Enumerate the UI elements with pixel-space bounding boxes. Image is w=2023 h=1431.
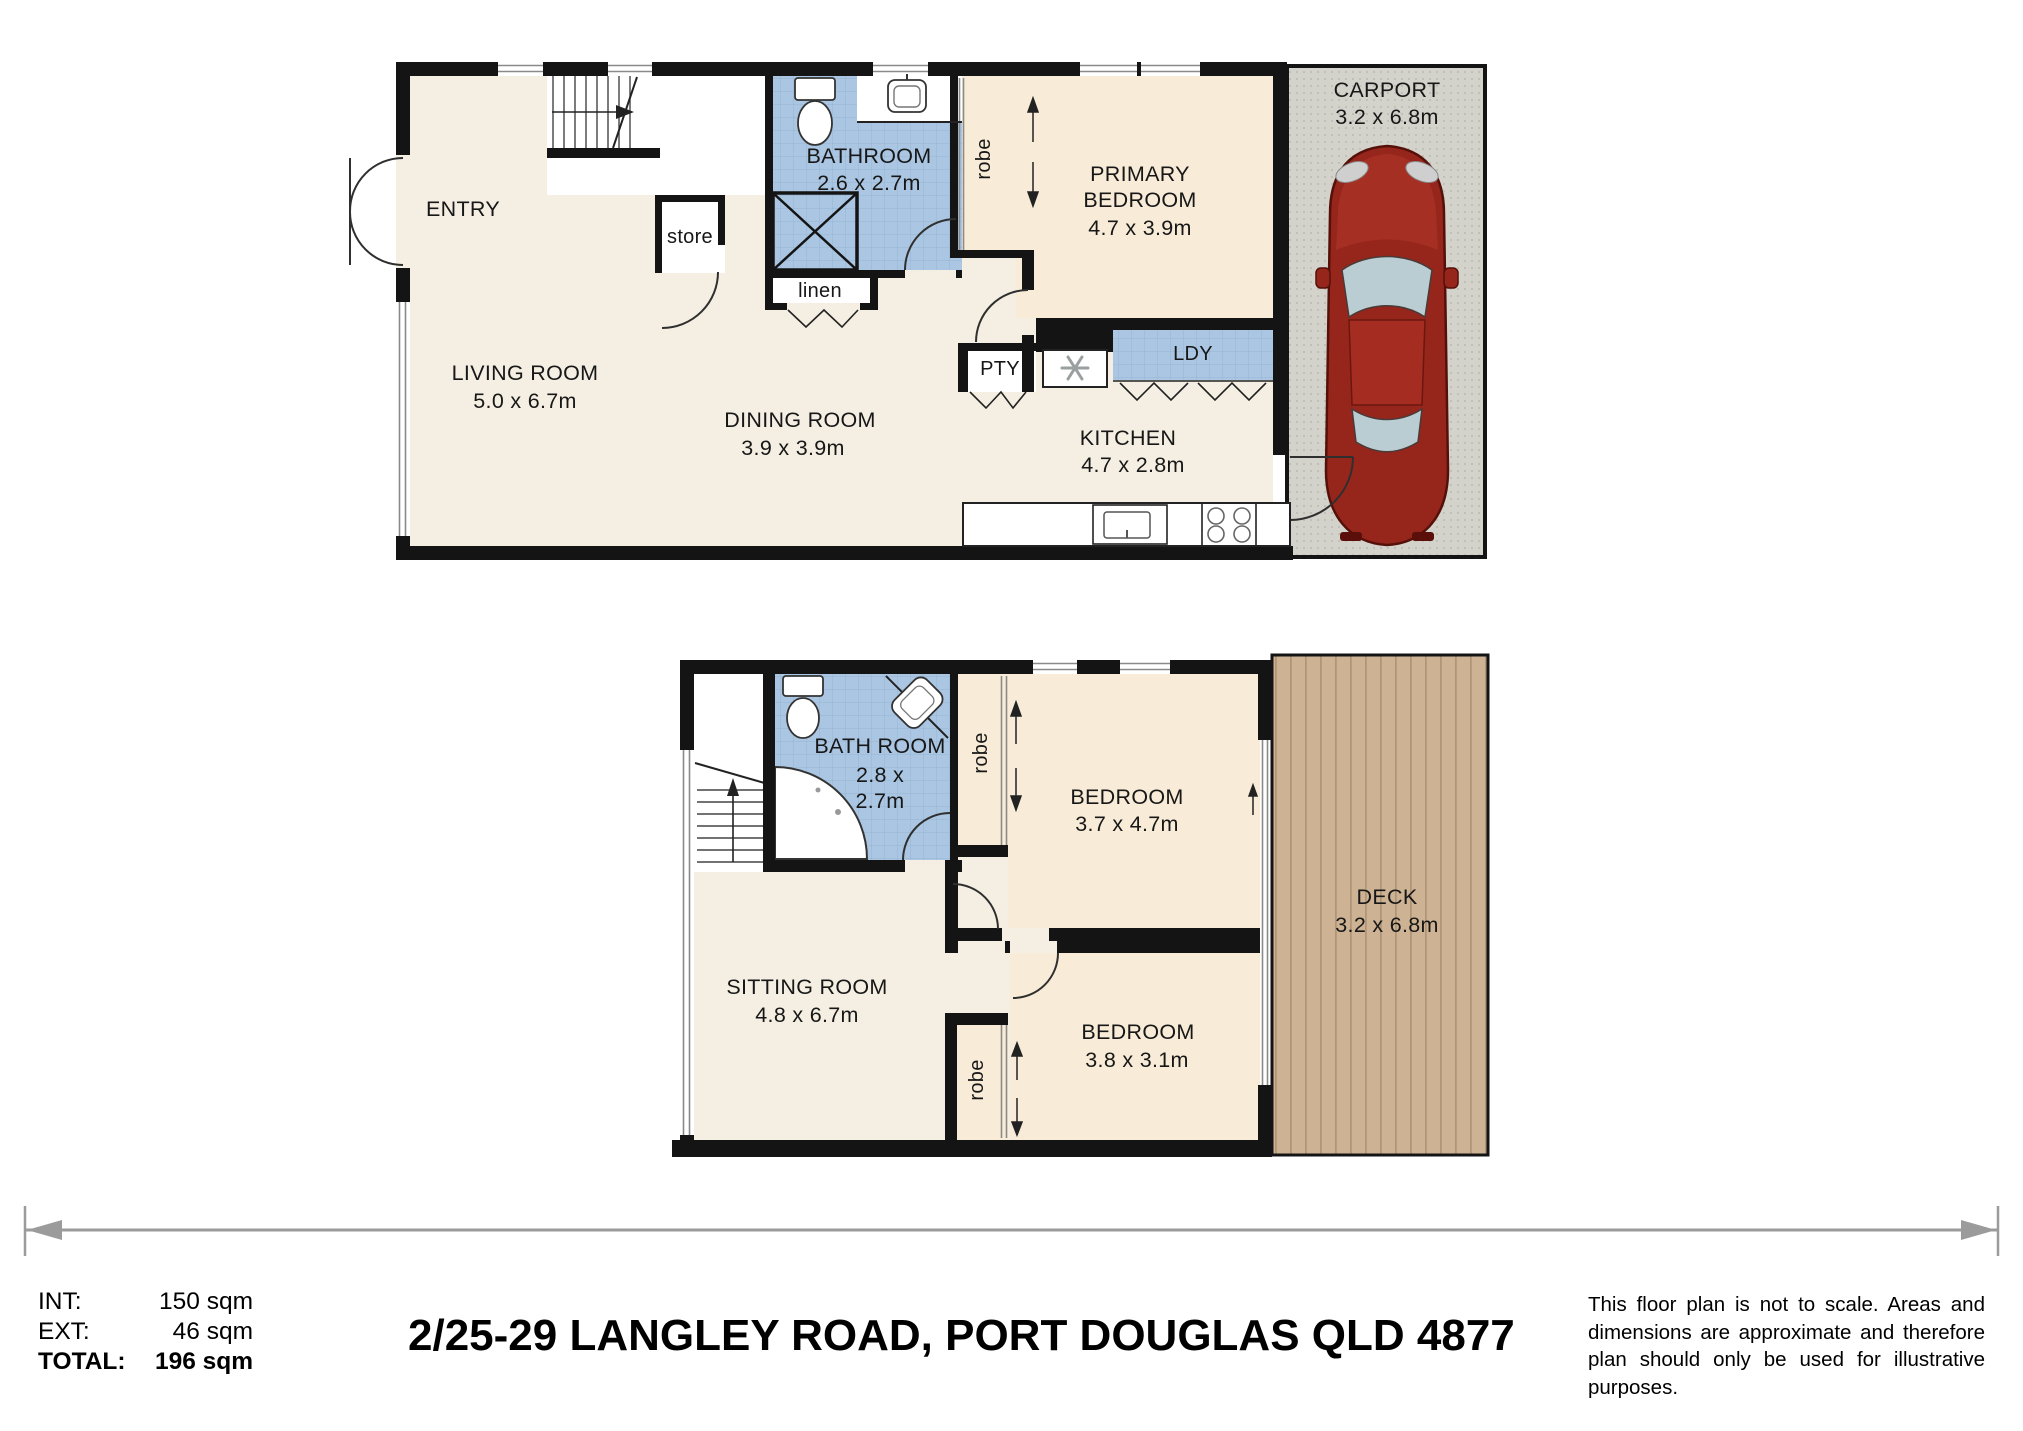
scale-bar <box>25 1206 1998 1256</box>
room-label-linen: linen <box>798 278 842 304</box>
room-dims-bathroom-lower: 2.8 x 2.7m <box>837 762 923 814</box>
room-dims-primary-bedroom: 4.7 x 3.9m <box>1088 215 1191 241</box>
room-label-pty: PTY <box>980 356 1020 382</box>
room-label-sitting: SITTING ROOM <box>726 974 887 1000</box>
floorplan-page: ENTRY LIVING ROOM 5.0 x 6.7m DINING ROOM… <box>0 0 2023 1431</box>
room-dims-kitchen: 4.7 x 2.8m <box>1081 452 1184 478</box>
room-label-bedroom2: BEDROOM <box>1081 1019 1194 1045</box>
property-address-title: 2/25-29 LANGLEY ROAD, PORT DOUGLAS QLD 4… <box>408 1311 1515 1361</box>
room-dims-bedroom1: 3.7 x 4.7m <box>1075 811 1178 837</box>
area-int-value: 150 sqm <box>138 1288 253 1316</box>
car-icon <box>1316 146 1458 545</box>
area-row-ext: EXT: 46 sqm <box>38 1318 318 1348</box>
room-label-primary-bedroom: PRIMARY BEDROOM <box>1050 161 1230 213</box>
ceiling-fan-icon <box>1043 350 1107 387</box>
floorplan-canvas <box>0 0 2023 1431</box>
room-label-robe-bed1: robe <box>968 732 994 773</box>
room-dims-dining: 3.9 x 3.9m <box>741 435 844 461</box>
room-dims-bedroom2: 3.8 x 3.1m <box>1085 1047 1188 1073</box>
room-label-robe-upper: robe <box>971 138 997 179</box>
room-dims-carport: 3.2 x 6.8m <box>1335 104 1438 130</box>
disclaimer-text: This floor plan is not to scale. Areas a… <box>1588 1291 1985 1401</box>
area-row-total: TOTAL: 196 sqm <box>38 1348 318 1378</box>
area-row-int: INT: 150 sqm <box>38 1288 318 1318</box>
room-label-bathroom-upper: BATHROOM <box>806 143 931 169</box>
room-dims-living: 5.0 x 6.7m <box>473 388 576 414</box>
room-label-ldy: LDY <box>1173 341 1213 367</box>
room-dims-sitting: 4.8 x 6.7m <box>755 1002 858 1028</box>
room-label-kitchen: KITCHEN <box>1080 425 1176 451</box>
room-label-entry: ENTRY <box>426 196 500 222</box>
area-total-label: TOTAL: <box>38 1348 126 1376</box>
kitchen-bench <box>963 503 1290 546</box>
area-int-label: INT: <box>38 1288 82 1316</box>
area-ext-value: 46 sqm <box>138 1318 253 1346</box>
room-label-deck: DECK <box>1357 884 1418 910</box>
area-total-value: 196 sqm <box>138 1348 253 1376</box>
room-dims-bathroom-upper: 2.6 x 2.7m <box>817 170 920 196</box>
kitchen-sink-icon <box>1093 505 1167 544</box>
room-label-carport: CARPORT <box>1334 77 1441 103</box>
room-label-store: store <box>667 224 713 250</box>
room-label-dining: DINING ROOM <box>724 407 875 433</box>
room-label-bedroom1: BEDROOM <box>1070 784 1183 810</box>
area-ext-label: EXT: <box>38 1318 90 1346</box>
toilet-icon <box>795 78 835 145</box>
toilet-icon <box>783 676 823 738</box>
room-label-living: LIVING ROOM <box>452 360 599 386</box>
room-dims-deck: 3.2 x 6.8m <box>1335 912 1438 938</box>
room-label-bathroom-lower: BATH ROOM <box>814 733 945 759</box>
upper-floor-plan <box>350 62 1485 560</box>
room-label-robe-bed2: robe <box>964 1059 990 1100</box>
